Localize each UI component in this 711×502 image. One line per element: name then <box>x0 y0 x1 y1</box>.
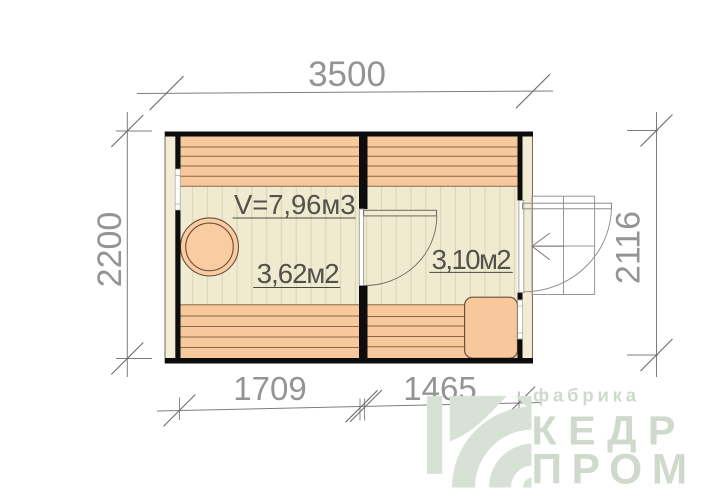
svg-text:2116: 2116 <box>610 211 648 284</box>
svg-text:3,62м2: 3,62м2 <box>257 258 340 289</box>
svg-text:3,10м2: 3,10м2 <box>432 244 512 275</box>
svg-text:3500: 3500 <box>308 55 386 94</box>
svg-text:фабрика: фабрика <box>533 385 637 406</box>
svg-text:ПРОМ: ПРОМ <box>532 447 688 494</box>
svg-text:1709: 1709 <box>233 370 306 407</box>
svg-text:V=7,96м3: V=7,96м3 <box>234 189 356 220</box>
svg-text:2200: 2200 <box>91 212 129 288</box>
